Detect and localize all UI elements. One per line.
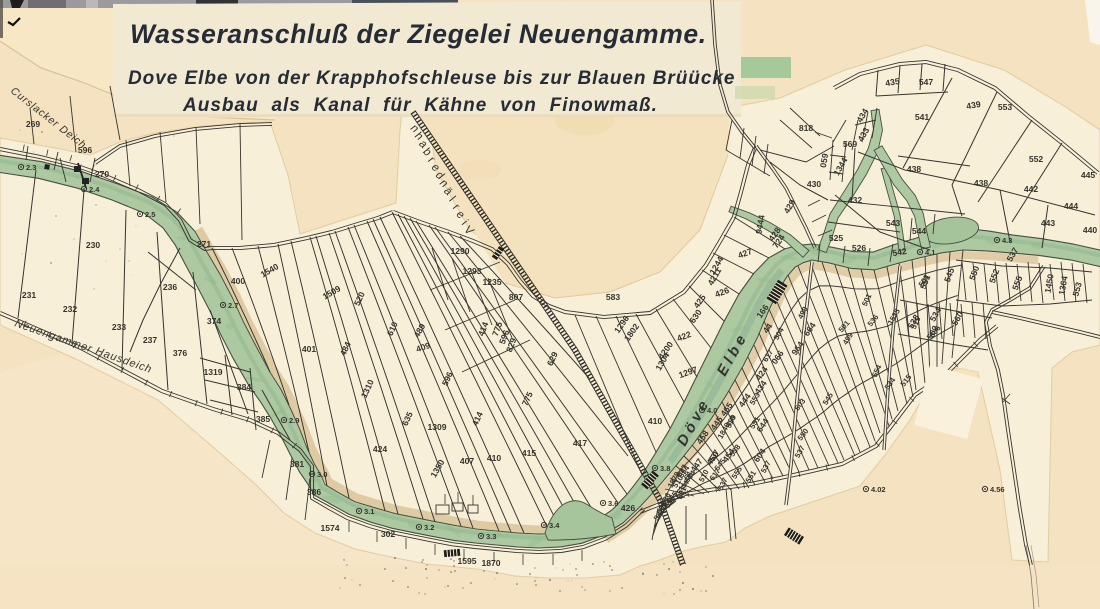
svg-text:236: 236: [163, 282, 178, 292]
svg-text:385: 385: [256, 414, 271, 424]
svg-text:376: 376: [173, 348, 188, 358]
svg-text:3.8: 3.8: [660, 464, 670, 473]
svg-text:400: 400: [231, 276, 246, 286]
svg-text:237: 237: [143, 335, 158, 345]
svg-text:407: 407: [460, 456, 475, 466]
svg-text:381: 381: [290, 459, 305, 469]
svg-text:3.2: 3.2: [424, 523, 434, 532]
svg-text:430: 430: [807, 179, 822, 189]
svg-text:1293: 1293: [462, 266, 481, 276]
svg-text:443: 443: [1041, 218, 1056, 228]
svg-text:232: 232: [63, 304, 78, 314]
svg-text:2.3: 2.3: [26, 163, 36, 172]
svg-text:410: 410: [487, 453, 502, 463]
svg-text:270: 270: [95, 169, 110, 179]
svg-text:3.3: 3.3: [486, 532, 496, 541]
svg-text:544: 544: [912, 226, 927, 236]
svg-text:Dove Elbe von der Krapphofschl: Dove Elbe von der Krapphofschleuse bis z…: [128, 68, 735, 89]
svg-text:525: 525: [829, 233, 844, 243]
svg-text:438: 438: [974, 178, 989, 188]
svg-text:543: 543: [886, 218, 901, 228]
svg-text:384: 384: [237, 382, 252, 392]
svg-text:Wasseranschluß der Ziegelei Ne: Wasseranschluß der Ziegelei Neuengamme.: [130, 19, 707, 49]
svg-text:426: 426: [621, 503, 636, 513]
svg-text:269: 269: [26, 119, 41, 129]
svg-text:271: 271: [197, 239, 212, 249]
svg-text:417: 417: [573, 438, 588, 448]
svg-text:440: 440: [1083, 225, 1098, 235]
svg-text:4.0: 4.0: [707, 406, 717, 415]
svg-text:444: 444: [1064, 201, 1079, 211]
svg-text:541: 541: [915, 112, 930, 122]
svg-text:401: 401: [302, 344, 317, 354]
svg-text:1309: 1309: [427, 422, 446, 432]
svg-text:807: 807: [509, 292, 524, 302]
svg-text:1290: 1290: [450, 246, 469, 256]
svg-text:415: 415: [522, 448, 537, 458]
svg-text:386: 386: [307, 487, 322, 497]
svg-text:410: 410: [648, 416, 663, 426]
svg-text:547: 547: [919, 77, 934, 87]
svg-text:2.9: 2.9: [289, 416, 299, 425]
svg-text:3.1: 3.1: [364, 507, 374, 516]
svg-text:231: 231: [22, 290, 37, 300]
svg-text:1235: 1235: [482, 277, 501, 287]
svg-text:596: 596: [78, 145, 93, 155]
svg-text:552: 552: [1029, 154, 1044, 164]
svg-text:4.02: 4.02: [871, 485, 886, 494]
svg-text:302: 302: [381, 529, 396, 539]
svg-text:442: 442: [1024, 184, 1039, 194]
svg-text:3.0: 3.0: [317, 470, 327, 479]
svg-text:1319: 1319: [203, 367, 222, 377]
svg-text:2.4: 2.4: [89, 185, 100, 194]
svg-text:374: 374: [207, 316, 222, 326]
svg-text:2.7: 2.7: [228, 301, 238, 310]
svg-text:233: 233: [112, 322, 127, 332]
svg-text:569: 569: [843, 139, 858, 149]
svg-text:230: 230: [86, 240, 101, 250]
svg-text:3.4: 3.4: [549, 521, 560, 530]
svg-text:3.6: 3.6: [608, 499, 618, 508]
svg-text:553: 553: [998, 102, 1013, 112]
svg-text:4.56: 4.56: [990, 485, 1005, 494]
svg-text:4.3: 4.3: [1002, 236, 1012, 245]
svg-text:2.5: 2.5: [145, 210, 155, 219]
svg-text:818: 818: [799, 123, 814, 133]
svg-text:1595: 1595: [457, 556, 476, 566]
svg-text:445: 445: [1081, 170, 1096, 180]
svg-text:4.1: 4.1: [925, 248, 935, 257]
svg-text:526: 526: [852, 243, 867, 253]
svg-text:424: 424: [373, 444, 388, 454]
svg-text:1574: 1574: [320, 523, 339, 533]
svg-text:1870: 1870: [481, 558, 500, 568]
svg-text:583: 583: [606, 292, 621, 302]
svg-text:Ausbau als Kanal für Kähne von: Ausbau als Kanal für Kähne von Finowmaß.: [182, 95, 658, 116]
svg-text:432: 432: [848, 195, 863, 205]
svg-text:438: 438: [907, 164, 922, 174]
